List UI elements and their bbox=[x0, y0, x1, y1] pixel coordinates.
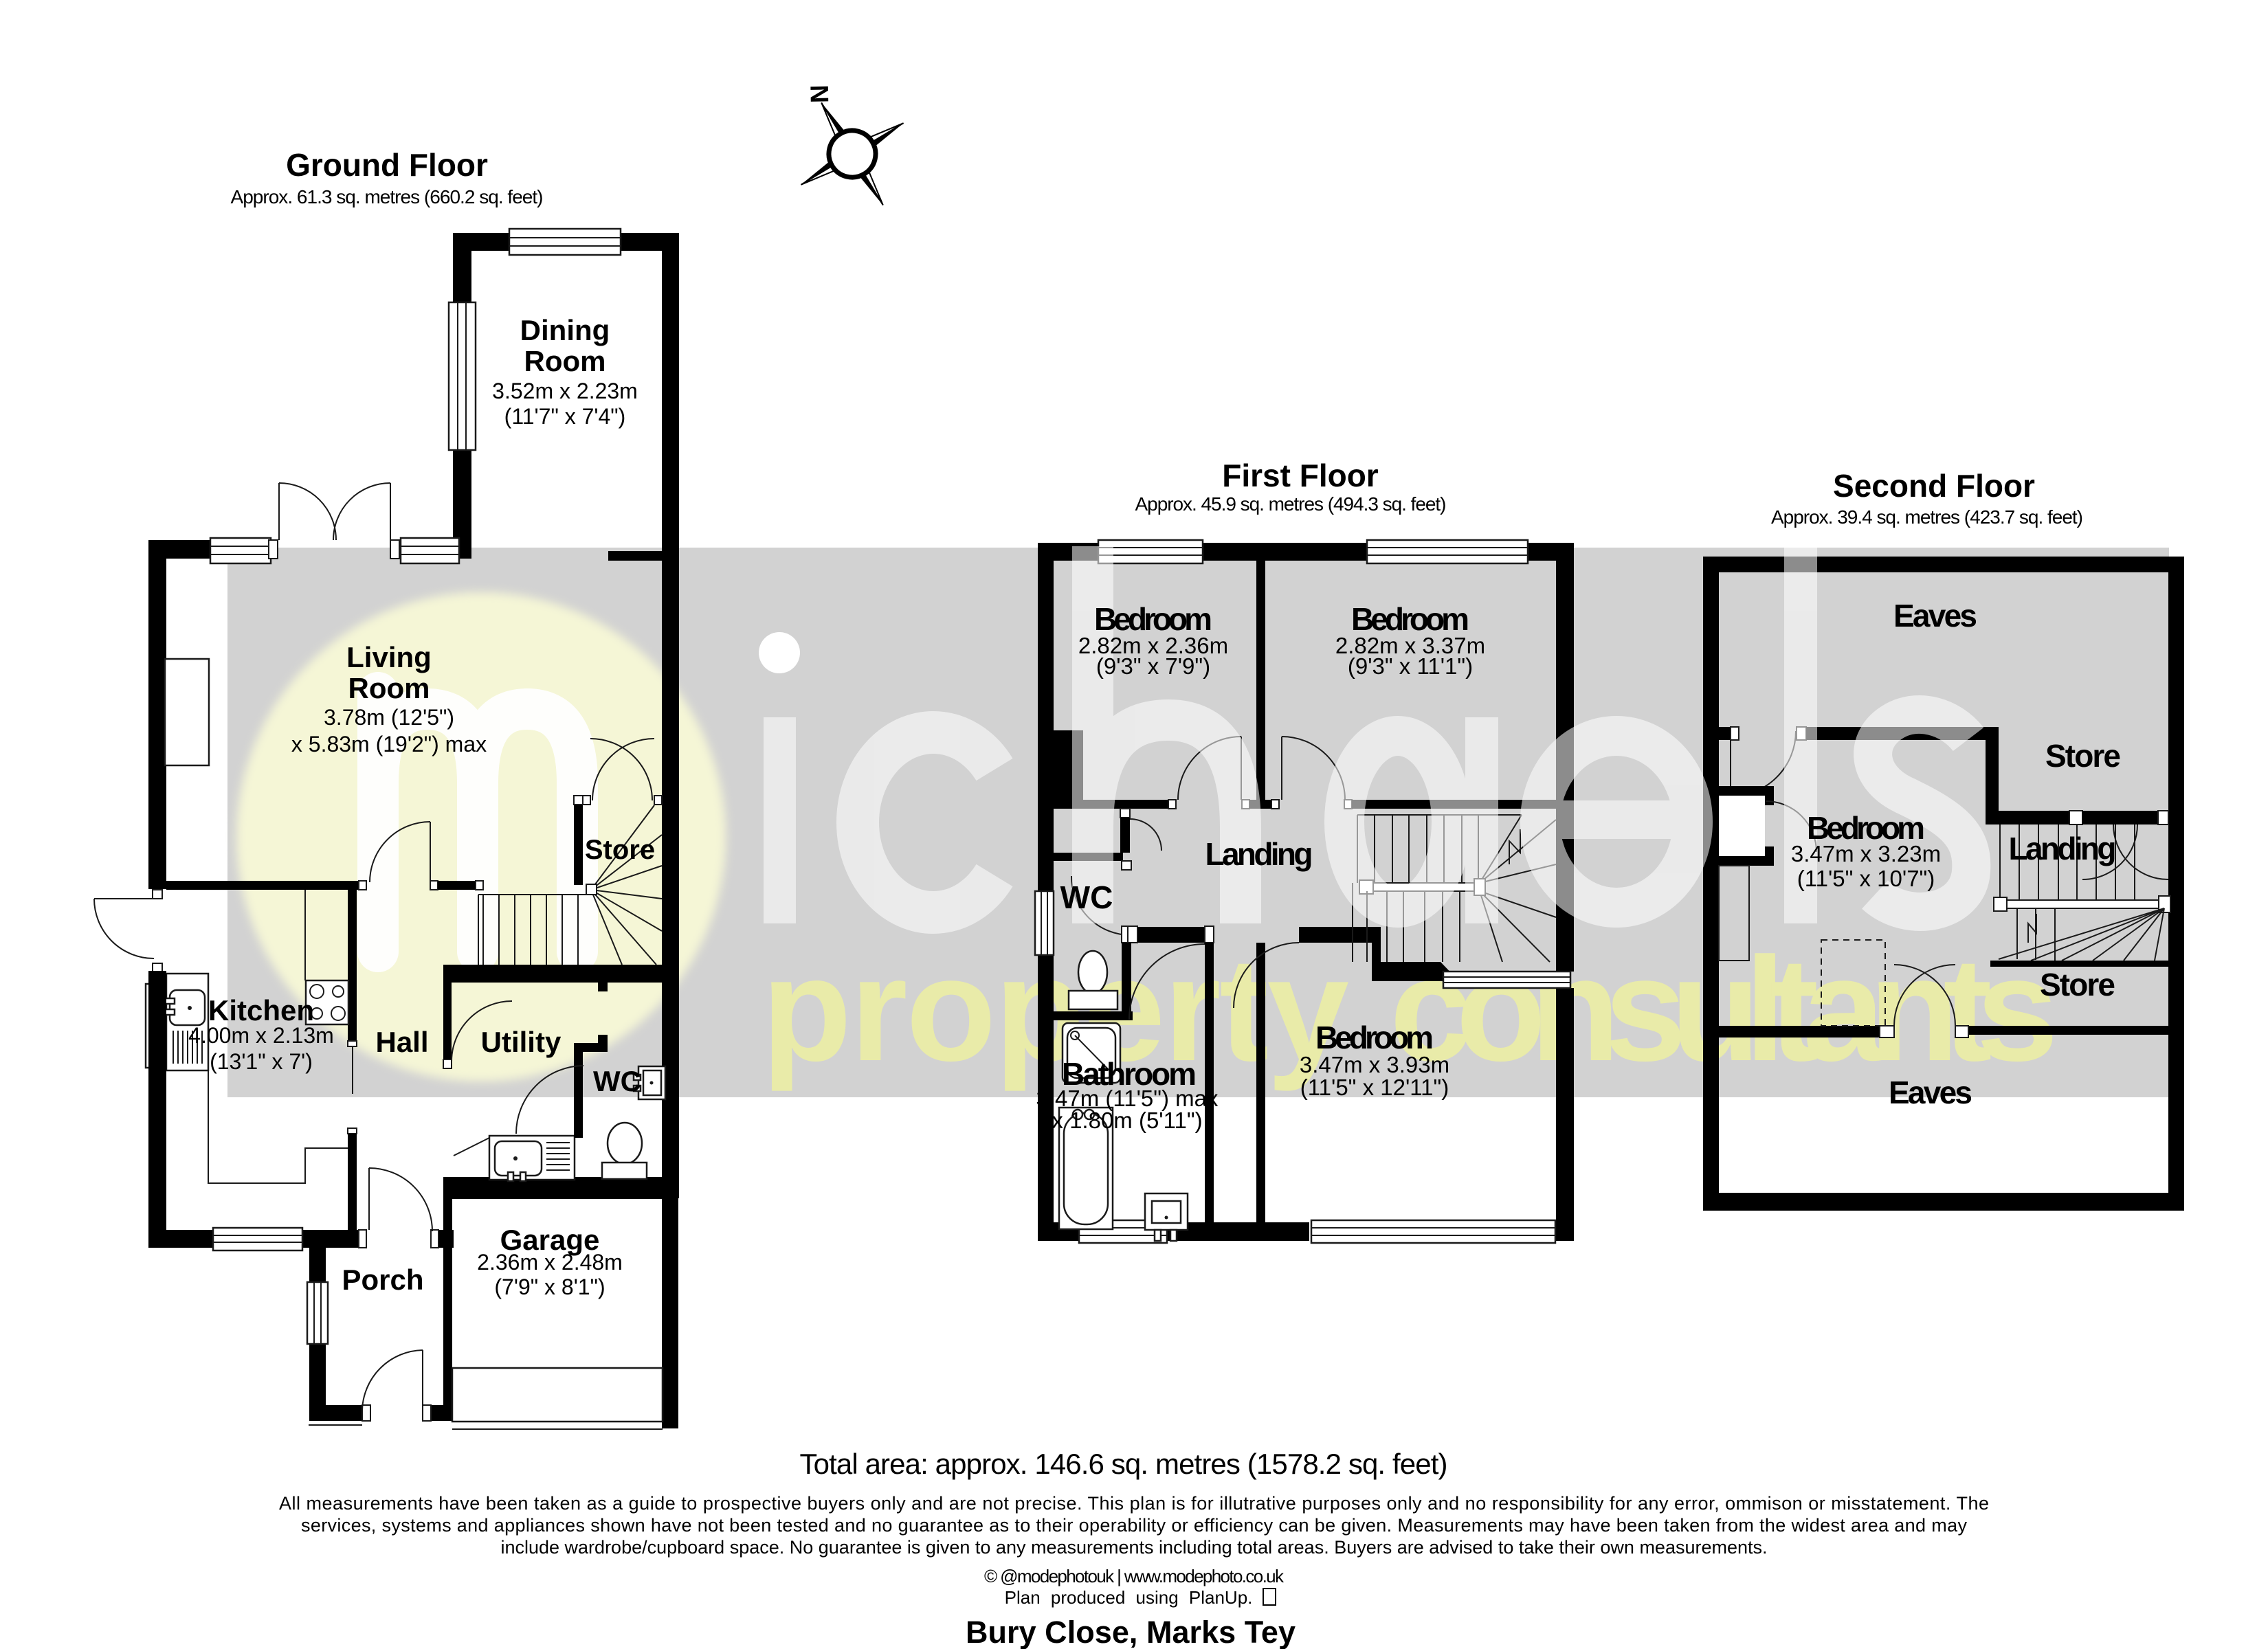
svg-text:Porch: Porch bbox=[342, 1264, 423, 1296]
svg-text:WC: WC bbox=[1060, 879, 1113, 915]
svg-text:Second Floor: Second Floor bbox=[1833, 468, 2035, 504]
svg-text:(7'9" x 8'1"): (7'9" x 8'1") bbox=[494, 1275, 605, 1299]
svg-text:Landing: Landing bbox=[1205, 836, 1313, 872]
svg-text:Hall: Hall bbox=[375, 1026, 428, 1058]
svg-text:Store: Store bbox=[2040, 967, 2115, 1002]
svg-text:Room: Room bbox=[348, 672, 430, 704]
svg-text:Bury Close, Marks Tey: Bury Close, Marks Tey bbox=[966, 1615, 1296, 1649]
svg-text:Kitchen: Kitchen bbox=[208, 994, 314, 1027]
svg-text:Total area: approx. 146.6 sq.: Total area: approx. 146.6 sq. metres (15… bbox=[800, 1448, 1448, 1480]
svg-text:services, systems and applianc: services, systems and appliances shown h… bbox=[301, 1515, 1968, 1536]
svg-text:Dining: Dining bbox=[520, 314, 610, 346]
svg-text:Store: Store bbox=[2045, 738, 2121, 774]
svg-text:N: N bbox=[805, 85, 834, 103]
svg-text:Eaves: Eaves bbox=[1889, 1075, 1972, 1110]
svg-text:(11'5" x 10'7"): (11'5" x 10'7") bbox=[1797, 866, 1935, 891]
svg-text:Approx. 39.4 sq. metres (423.7: Approx. 39.4 sq. metres (423.7 sq. feet) bbox=[1771, 506, 2083, 528]
svg-text:Bedroom: Bedroom bbox=[1315, 1020, 1434, 1055]
svg-text:© @modephotouk | www.modephoto: © @modephotouk | www.modephoto.co.uk bbox=[984, 1566, 1285, 1586]
svg-text:3.47m x 3.23m: 3.47m x 3.23m bbox=[1791, 841, 1941, 866]
svg-text:consultants: consultants bbox=[1390, 926, 2058, 1092]
svg-text:(9'3" x 11'1"): (9'3" x 11'1") bbox=[1348, 653, 1473, 679]
svg-text:(11'7" x 7'4"): (11'7" x 7'4") bbox=[504, 404, 626, 429]
svg-text:(13'1" x 7'): (13'1" x 7') bbox=[210, 1049, 313, 1074]
svg-text:2.36m x 2.48m: 2.36m x 2.48m bbox=[477, 1250, 623, 1275]
svg-text:3.52m x 2.23m: 3.52m x 2.23m bbox=[492, 379, 638, 403]
svg-text:Utility: Utility bbox=[481, 1026, 562, 1058]
svg-text:4.00m x 2.13m: 4.00m x 2.13m bbox=[188, 1023, 334, 1048]
svg-text:Eaves: Eaves bbox=[1893, 598, 1977, 633]
svg-text:Room: Room bbox=[524, 345, 606, 377]
svg-text:First Floor: First Floor bbox=[1222, 458, 1379, 493]
svg-text:(9'3" x 7'9"): (9'3" x 7'9") bbox=[1096, 653, 1210, 679]
svg-text:WC: WC bbox=[593, 1065, 641, 1097]
svg-text:Store: Store bbox=[585, 835, 655, 865]
svg-text:x 5.83m (19'2") max: x 5.83m (19'2") max bbox=[291, 732, 487, 756]
svg-text:Landing: Landing bbox=[2009, 831, 2117, 866]
svg-text:Approx. 45.9 sq. metres (494.3: Approx. 45.9 sq. metres (494.3 sq. feet) bbox=[1135, 493, 1447, 515]
svg-text:Plan produced using PlanUp.: Plan produced using PlanUp. bbox=[1005, 1587, 1253, 1608]
svg-text:include wardrobe/cupboard spac: include wardrobe/cupboard space. No guar… bbox=[500, 1537, 1767, 1558]
svg-text:Bedroom: Bedroom bbox=[1351, 601, 1469, 637]
svg-text:All measurements have been tak: All measurements have been taken as a gu… bbox=[279, 1493, 1989, 1514]
svg-text:Living: Living bbox=[346, 641, 432, 673]
svg-text:Bedroom: Bedroom bbox=[1094, 601, 1212, 637]
svg-text:3.78m (12'5"): 3.78m (12'5") bbox=[324, 705, 454, 730]
svg-text:3.47m x 3.93m: 3.47m x 3.93m bbox=[1300, 1052, 1449, 1077]
svg-text:x 1.80m (5'11"): x 1.80m (5'11") bbox=[1052, 1108, 1202, 1133]
svg-text:Ground Floor: Ground Floor bbox=[286, 147, 488, 183]
svg-text:Approx. 61.3 sq. metres (660.2: Approx. 61.3 sq. metres (660.2 sq. feet) bbox=[231, 186, 544, 207]
svg-text:(11'5" x 12'11"): (11'5" x 12'11") bbox=[1300, 1075, 1449, 1100]
